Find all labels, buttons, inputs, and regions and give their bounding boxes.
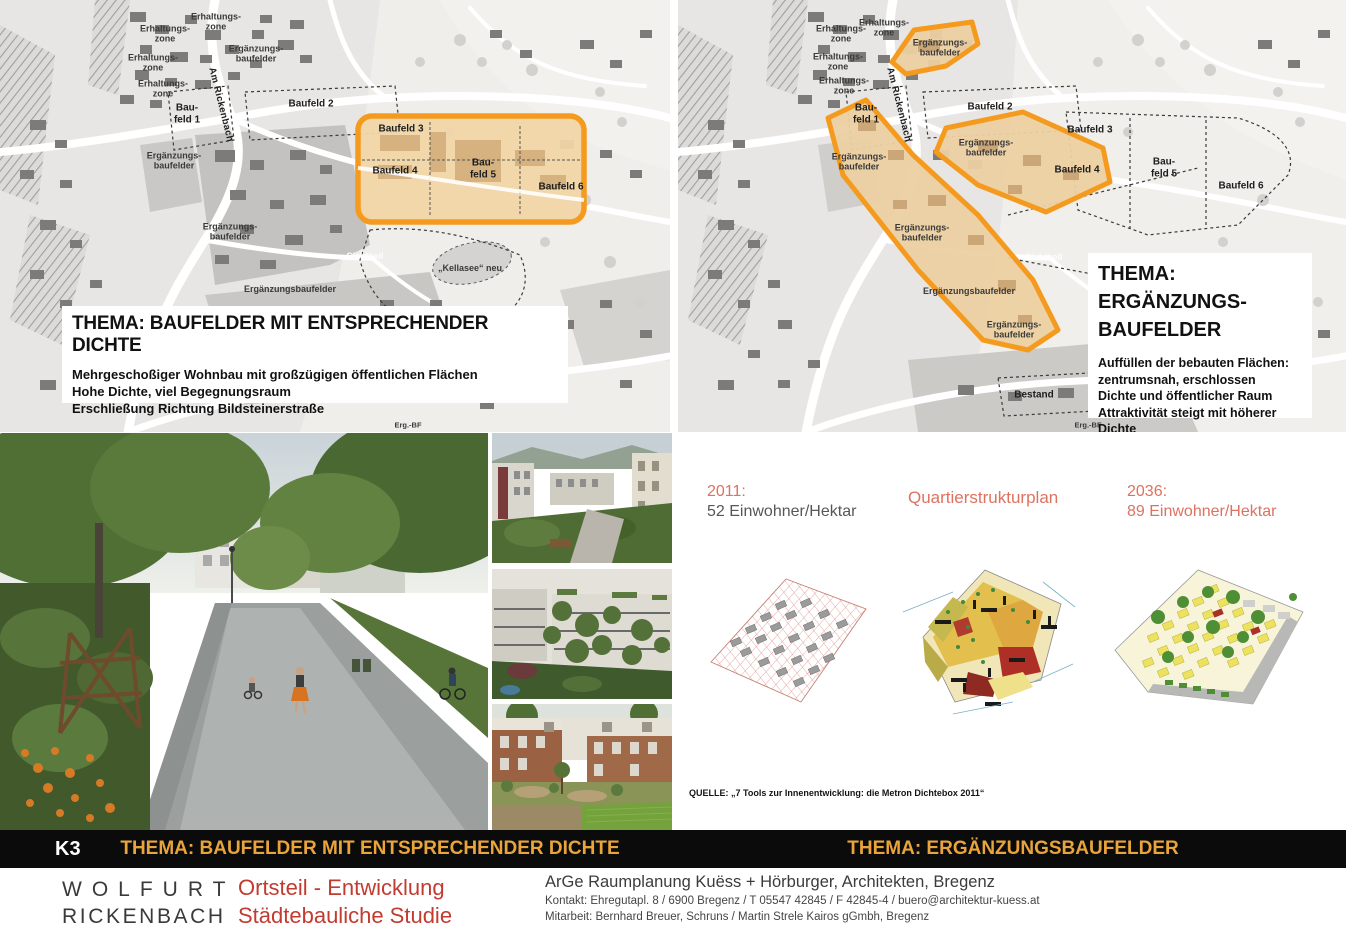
density-2036-year: 2036: — [1127, 482, 1276, 502]
courtyard-photo-3 — [492, 704, 672, 830]
map-label-baufeld-4: Baufeld 4 — [1054, 164, 1099, 176]
map-label-baufeld-5: Bau- feld 5 — [470, 158, 496, 181]
map-label-ergaenzungsbaufelder: Ergänzungs- baufelder — [203, 222, 258, 243]
map-label-baufeld-1: Bau- feld 1 — [174, 103, 200, 126]
map-label-erhaltungszone: Erhaltungs- zone — [138, 79, 188, 100]
sheet-code: K3 — [55, 830, 81, 868]
footer: WOLFURT RICKENBACH Ortsteil - Entwicklun… — [0, 868, 1346, 952]
map-label-baufeld-1: Bau- feld 1 — [853, 103, 879, 126]
map-left-bullet-1: Mehrgeschoßiger Wohnbau mit großzügigen … — [72, 366, 558, 383]
map-label-kellasee: „Kellasee“ neu — [438, 263, 502, 273]
map-label-ergaenzungsbaufelder: Ergänzungs- baufelder — [832, 152, 887, 173]
map-label-ergaenzungsbaufelder: Ergänzungsbaufelder — [923, 286, 1015, 296]
map-label-erhaltungszone: Erhaltungs- zone — [128, 53, 178, 74]
map-baufelder-dichte: Erhaltungs- zone Erhaltungs- zone Erhalt… — [0, 0, 670, 432]
courtyard-photo-2 — [492, 569, 672, 699]
map-label-ergaenzungsbaufelder: Ergänzungsbaufelder — [244, 284, 336, 294]
map-right-title-line1: THEMA: — [1098, 260, 1302, 288]
map-label-erhaltungszone: Erhaltungs- zone — [813, 52, 863, 73]
map-label-baufeld-5: Bau- feld 5 — [1151, 157, 1177, 180]
map-label-sichtkeil: Sichtkeil — [1025, 252, 1062, 262]
firm-team: Mitarbeit: Bernhard Breuer, Schruns / Ma… — [545, 910, 1040, 926]
density-diagrams-panel: 2011: 52 Einwohner/Hektar Quartierstrukt… — [678, 432, 1346, 830]
courtyard-photo-1 — [492, 433, 672, 563]
map-label-baufeld-2: Baufeld 2 — [288, 98, 333, 110]
courtyard-photo-1-graphic — [492, 433, 672, 563]
map-left-bullet-2: Hohe Dichte, viel Begegnungsraum — [72, 383, 558, 400]
density-2011-year: 2011: — [707, 482, 856, 502]
municipality-line2: RICKENBACH — [62, 903, 235, 930]
map-right-title-line2: ERGÄNZUNGS- — [1098, 288, 1302, 316]
map-left-bullet-3: Erschließung Richtung Bildsteinerstraße — [72, 400, 558, 417]
street-photo — [0, 433, 488, 830]
map-label-erhaltungszone: Erhaltungs- zone — [819, 76, 869, 97]
map-right-bullet-4: Attraktivität steigt mit höherer Dichte — [1098, 405, 1302, 433]
street-photo-graphic — [0, 433, 488, 830]
map-right-bullet-2: zentrumsnah, erschlossen — [1098, 372, 1302, 389]
courtyard-photo-3-graphic — [492, 704, 672, 830]
firm-name: ArGe Raumplanung Kuëss + Hörburger, Arch… — [545, 873, 1040, 892]
infobox-baufelder-dichte: THEMA: BAUFELDER MIT ENTSPRECHENDER DICH… — [62, 306, 568, 403]
map-right-bullet-3: Dichte und öffentlicher Raum — [1098, 388, 1302, 405]
map-left-title: THEMA: BAUFELDER MIT ENTSPRECHENDER DICH… — [72, 313, 558, 357]
quartierstrukturplan-label: Quartierstrukturplan — [908, 487, 1058, 508]
map-label-erhaltungszone: Erhaltungs- zone — [859, 18, 909, 39]
map-right-bullet-1: Auffüllen der bebauten Flächen: — [1098, 355, 1302, 372]
bar-title-right: THEMA: ERGÄNZUNGSBAUFELDER — [680, 830, 1346, 868]
bottom-title-bar: K3 THEMA: BAUFELDER MIT ENTSPRECHENDER D… — [0, 830, 1346, 868]
map-label-ergaenzungsbaufelder: Ergänzungs- baufelder — [229, 44, 284, 65]
map-label-baufeld-6: Baufeld 6 — [538, 181, 583, 193]
bar-title-left: THEMA: BAUFELDER MIT ENTSPRECHENDER DICH… — [110, 830, 630, 868]
map-label-sichtkeil: Sichtkeil — [346, 251, 383, 261]
map-ergaenzungsbaufelder: Erhaltungs- zone Erhaltungs- zone Erhalt… — [678, 0, 1346, 432]
map-label-baufeld-6: Baufeld 6 — [1218, 180, 1263, 192]
map-label-ergaenzungsbaufelder: Ergänzungs- baufelder — [913, 38, 968, 59]
map-label-ergaenzungsbaufelder: Ergänzungs- baufelder — [959, 138, 1014, 159]
map-right-title-line3: BAUFELDER — [1098, 316, 1302, 344]
firm-contact: Kontakt: Ehregutapl. 8 / 6900 Bregenz / … — [545, 894, 1040, 910]
axonometric-2011-diagram — [686, 557, 881, 717]
map-label-ergaenzungsbaufelder: Ergänzungs- baufelder — [147, 151, 202, 172]
density-2036-value: 89 Einwohner/Hektar — [1127, 502, 1276, 522]
axonometric-2036-diagram — [1093, 542, 1328, 722]
density-2011-value: 52 Einwohner/Hektar — [707, 502, 856, 522]
map-label-baufeld-4: Baufeld 4 — [372, 165, 417, 177]
project-line2: Städtebauliche Studie — [238, 902, 452, 930]
project-line1: Ortsteil - Entwicklung — [238, 874, 452, 902]
quartierstrukturplan-diagram — [893, 552, 1078, 722]
map-label-baufeld-3: Baufeld 3 — [378, 123, 423, 135]
map-label-baufeld-3: Baufeld 3 — [1067, 124, 1112, 136]
map-label-erhaltungszone: Erhaltungs- zone — [191, 12, 241, 33]
density-2011-block: 2011: 52 Einwohner/Hektar — [707, 482, 856, 522]
study-board-page: Erhaltungs- zone Erhaltungs- zone Erhalt… — [0, 0, 1346, 952]
map-label-bestand: Bestand — [1014, 389, 1053, 401]
project-title: Ortsteil - Entwicklung Städtebauliche St… — [238, 874, 452, 930]
infobox-ergaenzungsbaufelder: THEMA: ERGÄNZUNGS- BAUFELDER Auffüllen d… — [1088, 253, 1312, 418]
courtyard-photo-2-graphic — [492, 569, 672, 699]
map-label-erg-bf: Erg.-BF — [394, 422, 421, 431]
firm-block: ArGe Raumplanung Kuëss + Hörburger, Arch… — [545, 873, 1040, 925]
source-citation: QUELLE: „7 Tools zur Innenentwicklung: d… — [689, 788, 984, 798]
map-label-erhaltungszone: Erhaltungs- zone — [140, 24, 190, 45]
density-2036-block: 2036: 89 Einwohner/Hektar — [1127, 482, 1276, 522]
municipality-line1: WOLFURT — [62, 876, 235, 903]
map-label-ergaenzungsbaufelder: Ergänzungs- baufelder — [895, 223, 950, 244]
map-label-baufeld-2: Baufeld 2 — [967, 101, 1012, 113]
map-label-ergaenzungsbaufelder: Ergänzungs- baufelder — [987, 320, 1042, 341]
municipality-name: WOLFURT RICKENBACH — [62, 876, 235, 931]
